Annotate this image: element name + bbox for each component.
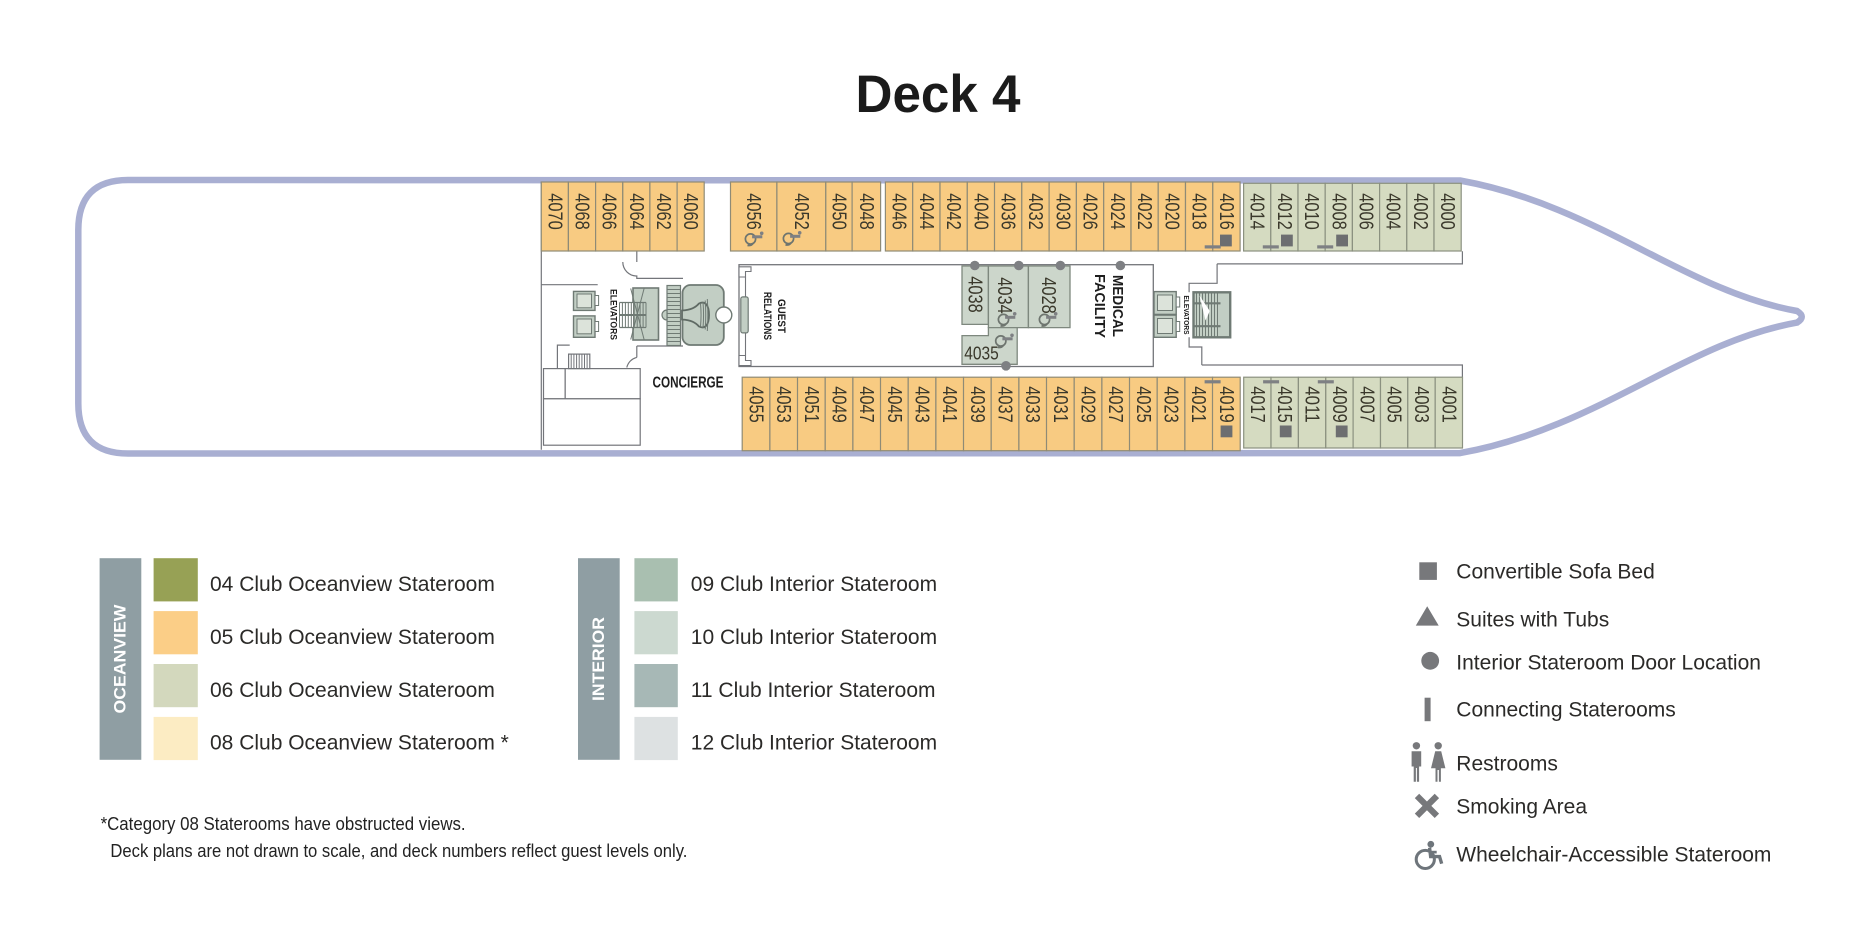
svg-text:4020: 4020 [1160,193,1183,230]
svg-text:4045: 4045 [883,386,906,423]
svg-text:4055: 4055 [745,386,768,423]
svg-text:4046: 4046 [888,193,911,230]
svg-text:4062: 4062 [652,193,675,230]
svg-text:ELEVATORS: ELEVATORS [1182,296,1191,335]
svg-text:4001: 4001 [1437,386,1460,423]
svg-text:04 Club Oceanview Stateroom: 04 Club Oceanview Stateroom [210,573,495,596]
svg-text:CONCIERGE: CONCIERGE [653,375,724,392]
svg-text:4022: 4022 [1133,193,1156,230]
svg-text:Suites with Tubs: Suites with Tubs [1456,609,1609,632]
svg-text:4018: 4018 [1188,193,1211,230]
svg-text:4006: 4006 [1355,193,1378,230]
svg-text:4044: 4044 [915,193,938,230]
svg-text:4038: 4038 [964,276,987,313]
svg-text:4047: 4047 [855,386,878,423]
svg-text:4064: 4064 [625,193,648,230]
svg-text:4033: 4033 [1021,386,1044,423]
svg-text:4016: 4016 [1215,193,1238,230]
svg-text:4026: 4026 [1079,193,1102,230]
svg-text:4023: 4023 [1160,386,1183,423]
svg-text:Convertible Sofa Bed: Convertible Sofa Bed [1456,561,1654,584]
svg-text:4027: 4027 [1104,386,1127,423]
svg-text:4024: 4024 [1106,193,1129,230]
svg-text:*Category 08 Staterooms have o: *Category 08 Staterooms have obstructed … [101,813,466,834]
svg-text:INTERIOR: INTERIOR [590,617,608,701]
svg-text:4040: 4040 [969,193,992,230]
svg-text:Interior Stateroom Door Locati: Interior Stateroom Door Location [1456,652,1761,675]
svg-text:4028: 4028 [1037,277,1060,314]
svg-text:4052: 4052 [790,193,813,230]
svg-text:4066: 4066 [598,193,621,230]
svg-text:4010: 4010 [1300,193,1323,230]
svg-text:4012: 4012 [1273,193,1296,230]
svg-text:Deck 4: Deck 4 [856,65,1022,124]
svg-text:4037: 4037 [994,386,1017,423]
svg-text:4021: 4021 [1187,386,1210,423]
svg-text:4049: 4049 [828,386,851,423]
svg-text:ELEVATORS: ELEVATORS [608,289,619,340]
svg-text:4056: 4056 [742,193,765,230]
svg-text:Connecting Staterooms: Connecting Staterooms [1456,699,1675,722]
svg-text:4032: 4032 [1024,193,1047,230]
svg-text:11 Club Interior Stateroom: 11 Club Interior Stateroom [691,679,936,702]
svg-text:05 Club Oceanview Stateroom: 05 Club Oceanview Stateroom [210,626,495,649]
svg-text:4000: 4000 [1436,193,1459,230]
svg-text:4043: 4043 [911,386,934,423]
svg-text:08 Club Oceanview Stateroom *: 08 Club Oceanview Stateroom * [210,732,509,755]
svg-text:4002: 4002 [1409,193,1432,230]
svg-text:4009: 4009 [1328,386,1351,423]
svg-text:4051: 4051 [800,386,823,423]
svg-text:4004: 4004 [1382,193,1405,230]
svg-text:4039: 4039 [966,386,989,423]
svg-text:4011: 4011 [1301,386,1324,423]
svg-text:10 Club Interior Stateroom: 10 Club Interior Stateroom [691,626,937,649]
svg-text:Deck plans are not drawn to sc: Deck plans are not drawn to scale, and d… [110,840,687,861]
svg-text:4029: 4029 [1077,386,1100,423]
svg-text:4007: 4007 [1355,386,1378,423]
svg-text:4005: 4005 [1383,386,1406,423]
svg-text:4068: 4068 [571,193,594,230]
svg-text:4025: 4025 [1132,386,1155,423]
svg-text:4036: 4036 [997,193,1020,230]
svg-text:4035: 4035 [964,343,999,363]
svg-text:4060: 4060 [679,193,702,230]
svg-text:Smoking Area: Smoking Area [1456,796,1587,819]
svg-text:4050: 4050 [828,193,851,230]
svg-text:4030: 4030 [1051,193,1074,230]
svg-text:4031: 4031 [1049,386,1072,423]
svg-text:12 Club Interior Stateroom: 12 Club Interior Stateroom [691,732,937,755]
svg-text:4015: 4015 [1273,386,1296,423]
svg-text:Restrooms: Restrooms [1456,753,1558,776]
svg-text:4070: 4070 [543,193,566,230]
svg-text:OCEANVIEW: OCEANVIEW [112,604,130,713]
svg-text:4034: 4034 [993,277,1016,314]
svg-text:4003: 4003 [1410,386,1433,423]
svg-text:Wheelchair-Accessible Stateroo: Wheelchair-Accessible Stateroom [1456,844,1771,867]
svg-text:4014: 4014 [1246,193,1269,230]
svg-text:4008: 4008 [1327,193,1350,230]
svg-text:4048: 4048 [855,193,878,230]
svg-text:4041: 4041 [938,386,961,423]
svg-text:4053: 4053 [772,386,795,423]
svg-text:09 Club Interior Stateroom: 09 Club Interior Stateroom [691,573,937,596]
svg-text:4017: 4017 [1246,386,1269,423]
svg-text:06 Club Oceanview Stateroom: 06 Club Oceanview Stateroom [210,679,495,702]
svg-text:4042: 4042 [942,193,965,230]
svg-text:4019: 4019 [1215,386,1238,423]
